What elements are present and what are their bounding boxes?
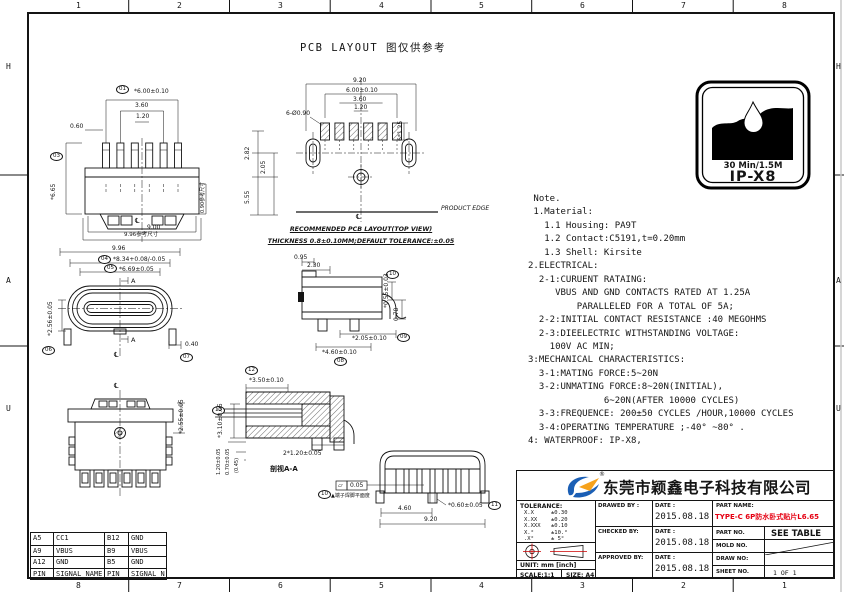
- dim-label: (0.45): [235, 458, 240, 473]
- pin-cell: A12: [31, 557, 53, 568]
- note-line: 1.Material:: [528, 206, 794, 219]
- pin-cell: B5: [104, 557, 128, 568]
- zone-letter: U: [6, 404, 11, 413]
- dim-label: 9.96参考尺寸: [124, 233, 158, 239]
- dim-label: 2.82: [245, 147, 251, 160]
- zone-letter: H: [836, 62, 841, 71]
- balloon-12: 12: [245, 366, 258, 375]
- scale-label: SCALE:1:1: [520, 572, 554, 579]
- pin-assignment-table: A5 CC1 B12 GND A9 VBUS B9 VBUS A12 GND B…: [30, 532, 167, 580]
- tol-key: X.XX: [521, 517, 551, 524]
- part-no-value-cell: SEE TABLE: [765, 527, 835, 540]
- scale-cell: SCALE:1:1 SIZE: A4: [517, 570, 596, 579]
- mold-no-cell: MOLD NO.: [713, 540, 765, 553]
- zone-letter: A: [6, 276, 11, 285]
- note-line: 3:MECHANICAL CHARACTERISTICS:: [528, 354, 794, 367]
- sheet-no-value-cell: 1 OF 1: [765, 566, 835, 579]
- part-no-value: SEE TABLE: [771, 529, 821, 539]
- table-row: A9 VBUS B9 VBUS: [31, 545, 166, 557]
- projection-cell: [517, 543, 596, 561]
- tolerance-row: .X°± 5°: [521, 536, 593, 543]
- ipx8-rating-label: IP-X8: [711, 169, 795, 185]
- column-header: PIN: [104, 569, 128, 580]
- dim-label: 6-Ø0.90: [286, 111, 310, 117]
- approved-by-label: APPROVED BY:: [598, 555, 643, 561]
- note-line: 1.3 Shell: Kirsite: [528, 247, 794, 260]
- zone-number: 2: [177, 1, 182, 10]
- column-header: PIN: [31, 569, 53, 580]
- dim-label: 5.55: [245, 191, 251, 204]
- balloon-08: 08: [334, 357, 347, 366]
- tolerance-title: TOLERANCE:: [520, 503, 562, 510]
- centerline-symbol: ℄: [114, 352, 119, 359]
- zone-number: 3: [278, 1, 283, 10]
- mold-no-value-cell: [765, 540, 835, 553]
- dim-label: *2.55±0.05: [179, 399, 185, 434]
- tol-key: X.°: [521, 530, 551, 537]
- part-no-cell: PART NO.: [713, 527, 765, 540]
- table-row: A12 GND B5 GND: [31, 556, 166, 568]
- dim-label: 0.90参考尺寸: [201, 182, 206, 213]
- balloon-03: 03: [50, 152, 63, 161]
- zone-letter: H: [6, 62, 11, 71]
- pin-cell: A5: [31, 533, 53, 545]
- checked-by-label: CHECKED BY:: [598, 529, 639, 535]
- dim-label: 1.20: [136, 114, 149, 120]
- unit-label: UNIT: mm [inch]: [520, 562, 576, 569]
- balloon-07: 07: [180, 353, 193, 362]
- dim-label: 9.20: [353, 78, 366, 84]
- title-block: ® 东莞市颖鑫电子科技有限公司 TOLERANCE: X.X±0.30 X.XX…: [516, 470, 834, 578]
- signal-cell: CC1: [53, 533, 104, 545]
- dim-label: *2.05±0.10: [352, 336, 387, 342]
- zone-number: 1: [782, 581, 787, 590]
- dim-label: 0.78: [394, 308, 400, 321]
- dim-label: 4.60: [398, 506, 411, 512]
- part-name-label: PART NAME:: [716, 503, 754, 509]
- note-line: 1.1 Housing: PA9T: [528, 220, 794, 233]
- date-value: 2015.08.18: [655, 512, 709, 522]
- note-line: Note.: [528, 193, 794, 206]
- pcb-caption: THICKNESS 0.8±0.10MM;DEFAULT TOLERANCE:±…: [268, 238, 454, 245]
- zone-number: 8: [782, 1, 787, 10]
- dim-label: *3.50±0.10: [249, 378, 284, 384]
- dim-label: 0.40: [185, 342, 198, 348]
- view-front-linework: [58, 248, 182, 358]
- note-line: PARALLELED FOR A TOTAL OF 5A;: [528, 301, 794, 314]
- note-line: 100V AC MIN;: [528, 341, 794, 354]
- section-caption: 剖视A-A: [270, 466, 298, 473]
- checked-by-cell: CHECKED BY:: [596, 527, 653, 553]
- tolerance-row: X.XXX±0.10: [521, 523, 593, 530]
- balloon-10: 10: [318, 490, 331, 499]
- size-label: SIZE: A4: [566, 572, 594, 579]
- zone-letter: U: [836, 404, 841, 413]
- section-mark: A: [131, 278, 135, 285]
- sheet-no-value: 1 OF 1: [773, 569, 796, 577]
- tol-val: ±0.30: [551, 510, 568, 517]
- sheet-no-label: SHEET NO.: [716, 569, 749, 575]
- tolerance-row: X.X±0.30: [521, 510, 593, 517]
- company-name: 东莞市颖鑫电子科技有限公司: [603, 476, 811, 498]
- product-edge-label: PRODUCT EDGE: [441, 206, 489, 212]
- part-no-label: PART NO.: [716, 530, 745, 536]
- date-label: DATE :: [655, 555, 675, 561]
- dim-label: *0.55±0.03: [384, 273, 390, 308]
- company-logo: [561, 473, 603, 499]
- tol-val: ±10.°: [551, 530, 568, 537]
- column-header: SIGNAL NAME: [53, 569, 104, 580]
- approved-by-cell: APPROVED BY:: [596, 553, 653, 579]
- tolerance-table: X.X±0.30 X.XX±0.20 X.XXX±0.10 X.°±10.° .…: [521, 510, 593, 543]
- flatness-note: ▲端子焊脚平面度: [331, 494, 370, 499]
- note-line: 2-1:CURUENT RATAING:: [528, 274, 794, 287]
- tolerance-row: X.°±10.°: [521, 530, 593, 537]
- notes-block: Note. 1.Material: 1.1 Housing: PA9T 1.2 …: [528, 193, 794, 449]
- note-line: VBUS AND GND CONTACTS RATED AT 1.25A: [528, 287, 794, 300]
- signal-cell: VBUS: [53, 546, 104, 557]
- dim-label: *0.60±0.05: [448, 503, 483, 509]
- dim-label: *2.56±0.05: [48, 301, 54, 336]
- tolerance-cell: TOLERANCE: X.X±0.30 X.XX±0.20 X.XXX±0.10…: [517, 501, 596, 543]
- flatness-symbol: ▱: [338, 483, 343, 489]
- section-mark: A: [131, 337, 135, 344]
- pcb-caption: RECOMMENDED PCB LAYOUT(TOP VIEW): [290, 226, 432, 233]
- note-line: 2-3:DIEELECTRIC WITHSTANDING VOLTAGE:: [528, 328, 794, 341]
- dim-label: 9.00: [147, 225, 160, 231]
- zone-number: 8: [76, 581, 81, 590]
- zone-number: 2: [681, 581, 686, 590]
- date-cell: DATE : 2015.08.18: [653, 501, 713, 527]
- zone-number: 5: [379, 581, 384, 590]
- balloon-06: 06: [42, 346, 55, 355]
- dim-label: 3.60: [353, 97, 366, 103]
- engineering-drawing-sheet: { "frame": { "top_numbers": ["1","2","3"…: [0, 0, 844, 592]
- column-header: SIGNAL NAME: [128, 569, 165, 580]
- signal-cell: GND: [128, 557, 165, 568]
- balloon-09: 09: [397, 333, 410, 342]
- zone-letter: A: [836, 276, 841, 285]
- part-name-cell: PART NAME: TYPE-C 6P防水卧式贴片L6.65: [713, 501, 835, 527]
- dim-label: *6.65: [51, 184, 57, 200]
- tol-val: ±0.20: [551, 517, 568, 524]
- pin-cell: A9: [31, 546, 53, 557]
- note-line: 3-1:MATING FORCE:5~20N: [528, 368, 794, 381]
- dim-label: 0.70±0.05: [226, 449, 231, 475]
- zone-number: 1: [76, 1, 81, 10]
- view-section-linework: [215, 384, 354, 460]
- tol-key: .X°: [521, 536, 551, 543]
- note-line: 1.2 Contact:C5191,t=0.20mm: [528, 233, 794, 246]
- draw-no-label: DRAW NO:: [716, 556, 748, 562]
- signal-cell: GND: [128, 533, 165, 545]
- company-band: ® 东莞市颖鑫电子科技有限公司: [517, 471, 835, 501]
- table-row: A5 CC1 B12 GND: [31, 533, 166, 545]
- signal-cell: GND: [53, 557, 104, 568]
- balloon-04: 04: [98, 255, 111, 264]
- balloon-11: 11: [488, 501, 501, 510]
- signal-cell: VBUS: [128, 546, 165, 557]
- dim-label: *4.60±0.10: [322, 350, 357, 356]
- dim-label: *6.00±0.10: [134, 89, 169, 95]
- draw-no-value-cell: [765, 553, 835, 566]
- date-value: 2015.08.18: [655, 538, 709, 548]
- table-header-row: PIN SIGNAL NAME PIN SIGNAL NAME: [31, 568, 166, 580]
- sheet-no-cell: SHEET NO.: [713, 566, 765, 579]
- date-value: 2015.08.18: [655, 564, 709, 574]
- divider: [561, 570, 562, 579]
- dim-label: 6.00±0.10: [346, 88, 378, 94]
- zone-number: 6: [580, 1, 585, 10]
- projection-symbols: [517, 543, 595, 560]
- zone-number: 7: [177, 581, 182, 590]
- tol-key: X.X: [521, 510, 551, 517]
- dim-label: 2*1.20±0.05: [283, 451, 322, 457]
- zone-number: 3: [580, 581, 585, 590]
- centerline-symbol: ℄: [114, 383, 119, 390]
- zone-number: 5: [479, 1, 484, 10]
- date-cell: DATE : 2015.08.18: [653, 527, 713, 553]
- date-label: DATE :: [655, 503, 675, 509]
- note-line: 3-4:OPERATING TEMPERATURE ;-40° ~80° .: [528, 422, 794, 435]
- note-line: 4: WATERPROOF: IP-X8,: [528, 435, 794, 448]
- note-line: 3-3:FREQUENCE: 200±50 CYCLES /HOUR,10000…: [528, 408, 794, 421]
- date-label: DATE :: [655, 529, 675, 535]
- flatness-value: 0.05: [350, 483, 363, 489]
- pin-cell: B12: [104, 533, 128, 545]
- drawed-by-label: DRAWED BY :: [598, 503, 639, 509]
- note-line: 2.ELECTRICAL:: [528, 260, 794, 273]
- balloon-05: 05: [104, 264, 117, 273]
- drawed-by-cell: DRAWED BY :: [596, 501, 653, 527]
- mold-no-label: MOLD NO.: [716, 543, 747, 549]
- balloon-01: 01: [116, 85, 129, 94]
- zone-number: 7: [681, 1, 686, 10]
- centerline-symbol: ℄: [356, 214, 361, 221]
- part-name-value: TYPE-C 6P防水卧式贴片L6.65: [715, 512, 819, 522]
- dim-label: 2.05: [261, 161, 267, 174]
- dim-label: 0.95: [294, 255, 307, 261]
- dim-label: 2.30: [307, 263, 320, 269]
- dim-label: 6*1.25: [398, 121, 404, 141]
- tolerance-row: X.XX±0.20: [521, 517, 593, 524]
- note-line: 3-2:UNMATING FORCE:8~20N(INITIAL),: [528, 381, 794, 394]
- dim-label: *8.34+0.08/-0.05: [113, 257, 165, 263]
- pin-cell: B9: [104, 546, 128, 557]
- view-bottom-linework: [68, 390, 185, 496]
- centerline-symbol: ℄: [135, 218, 140, 225]
- draw-no-cell: DRAW NO:: [713, 553, 765, 566]
- zone-number: 6: [278, 581, 283, 590]
- dim-label: *6.69±0.05: [119, 267, 154, 273]
- tol-val: ±0.10: [551, 523, 568, 530]
- zone-number: 4: [379, 1, 384, 10]
- dim-label: 3.60: [135, 103, 148, 109]
- dim-label: 1.20±0.05: [217, 449, 222, 475]
- tol-key: X.XXX: [521, 523, 551, 530]
- dim-label: 0.60: [70, 124, 83, 130]
- dim-label: 1.20: [354, 105, 367, 111]
- note-line: 6~20N(AFTER 10000 CYCLES): [528, 395, 794, 408]
- view-pcb-linework: [250, 78, 438, 222]
- page-title: PCB LAYOUT 图仅供参考: [300, 40, 446, 55]
- unit-cell: UNIT: mm [inch]: [517, 561, 596, 570]
- dim-label: 9.20: [424, 517, 437, 523]
- dim-label: 9.96: [112, 246, 125, 252]
- tol-val: ± 5°: [551, 536, 564, 543]
- dim-label: *3.10±0.05: [218, 403, 224, 438]
- note-line: 2-2:INITIAL CONTACT RESISTANCE :40 MEGOH…: [528, 314, 794, 327]
- zone-number: 4: [479, 581, 484, 590]
- view-rear-linework: [336, 451, 489, 528]
- date-cell: DATE : 2015.08.18: [653, 553, 713, 579]
